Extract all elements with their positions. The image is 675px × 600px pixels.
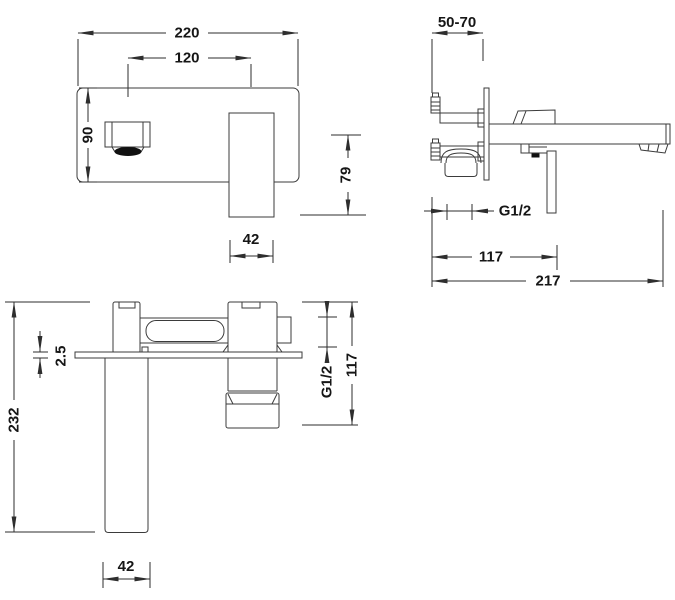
aerator-detail-line [657,144,659,152]
dim-label-90: 90 [80,127,97,144]
dim-plan-overall-length: 232 [5,302,95,532]
handle-front [229,113,274,217]
inlet-tube-top [440,113,484,123]
dim-side-thread: G1/2 [424,197,531,287]
dim-label-232: 232 [6,407,23,432]
dim-label-50-70: 50-70 [438,14,476,31]
dim-side-117: 117 [432,245,557,270]
lever-bar-side [547,151,556,213]
tube-flange-top [478,109,484,127]
plate-screw-detail [142,347,148,352]
faucet-dimension-drawing: 220 120 90 42 [0,0,675,600]
set-screw-mark [532,154,539,157]
dim-side-wall-depth: 50-70 [432,14,483,93]
mounting-bolt-top [431,97,440,113]
cartridge-body [445,163,477,177]
dim-label-117-side: 117 [479,249,503,266]
dim-plan-plate-thickness: 2.5 [33,331,70,378]
thread-port-plan [277,317,291,343]
port-flare-right [277,345,282,352]
dim-label-2-5: 2.5 [53,346,70,367]
handle-grip-side [513,110,555,124]
mounting-bolt-top-cap [433,93,439,97]
dim-plan-spout-width: 42 [103,558,150,588]
port-flare-left [223,345,228,352]
handle-port-notch [242,302,260,308]
in-wall-valve-body [431,93,484,177]
plate-edge-plan [75,352,302,358]
dim-plan-thread: G1/2 [318,302,337,398]
grip-chamfer-right [272,394,277,404]
aerator-side [639,144,668,153]
spout-side [489,124,670,144]
spout-port-plan [113,302,140,353]
technical-drawing-page: 220 120 90 42 [0,0,675,600]
handle-plan [226,358,279,428]
dim-label-g12-side: G1/2 [499,203,532,220]
dim-side-handle-drop: 79 [300,135,366,215]
dim-label-217: 217 [535,273,560,290]
cartridge-dome-inner [446,153,476,163]
dim-label-g12-plan: G1/2 [319,366,336,399]
mounting-bolt-bottom-cap [433,139,439,143]
dim-side-217: 217 [432,210,663,290]
side-view: 50-70 G1/2 117 217 [424,14,670,290]
dim-plan-117: 117 [302,302,361,425]
plan-view: 232 2.5 G1/2 117 [5,302,361,588]
dim-label-42: 42 [243,231,260,248]
body-tube-inner [146,321,224,342]
dim-front-handle-width: 42 [230,231,273,263]
handle-grip-plan [226,393,279,428]
spout-side-group [489,110,670,213]
dim-label-120: 120 [174,50,199,67]
dim-label-79: 79 [338,167,355,184]
tube-flange-bottom [478,142,484,161]
spout-tube-plan [105,358,148,533]
dim-label-117-plan: 117 [344,353,361,377]
lever-joint-side [521,144,529,153]
aerator-detail-line [648,144,649,151]
dim-label-42-plan: 42 [118,558,135,575]
dim-label-220: 220 [174,25,199,42]
front-view: 220 120 90 42 [77,25,366,264]
valve-body-plan [113,302,291,353]
handle-port-plan [228,302,277,353]
spout-port-notch [119,302,135,308]
wall-plate-side [484,88,489,180]
aerator-outlet-front [115,148,141,156]
grip-chamfer-left [228,394,233,404]
cartridge-dome-outer [441,149,481,163]
spout-tube-end [105,529,148,533]
